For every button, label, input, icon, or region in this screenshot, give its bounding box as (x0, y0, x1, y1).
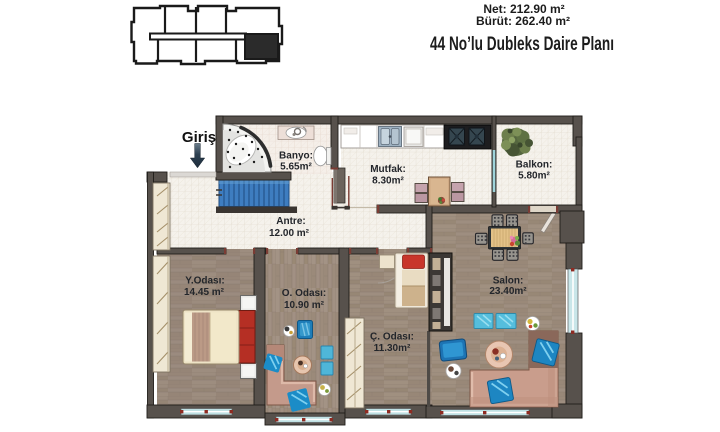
svg-text:44 No’lu Dubleks Daire Planı: 44 No’lu Dubleks Daire Planı (430, 34, 614, 55)
svg-text:8.30m²: 8.30m² (372, 176, 404, 187)
svg-text:O. Odası:: O. Odası: (282, 288, 326, 299)
svg-text:Bürüt: 262.40 m²: Bürüt: 262.40 m² (476, 14, 570, 28)
svg-text:5.80m²: 5.80m² (518, 171, 550, 182)
svg-text:Mutfak:: Mutfak: (370, 164, 406, 175)
svg-text:Antre:: Antre: (276, 216, 305, 227)
svg-text:10.90 m²: 10.90 m² (284, 300, 325, 311)
svg-text:11.30m²: 11.30m² (374, 343, 411, 354)
svg-text:Ç. Odası:: Ç. Odası: (370, 332, 414, 343)
svg-text:14.45 m²: 14.45 m² (184, 287, 225, 298)
svg-text:Y.Odası:: Y.Odası: (185, 276, 224, 287)
svg-text:23.40m²: 23.40m² (489, 286, 527, 297)
svg-text:Banyo:: Banyo: (279, 151, 313, 162)
svg-text:12.00 m²: 12.00 m² (269, 228, 310, 239)
svg-text:5.65m²: 5.65m² (280, 162, 312, 173)
svg-text:Salon:: Salon: (493, 276, 524, 287)
svg-text:Balkon:: Balkon: (516, 160, 553, 171)
